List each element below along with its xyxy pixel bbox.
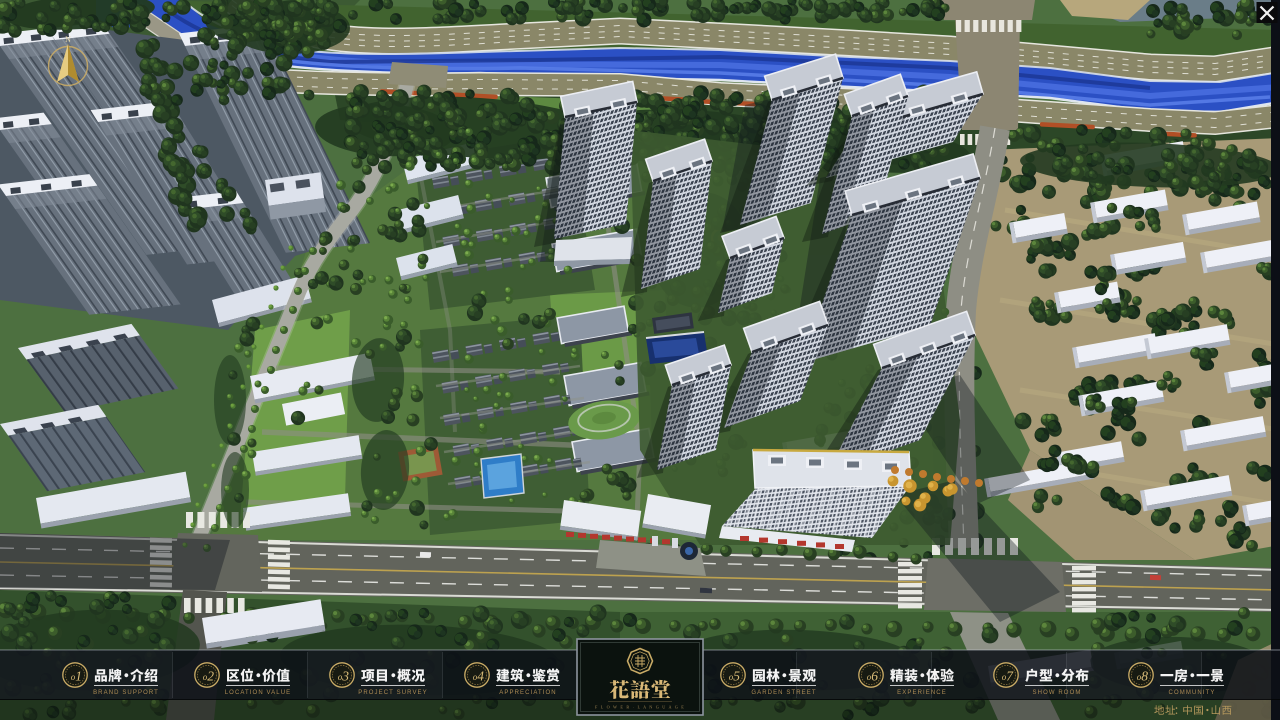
svg-text:BRAND SUPPORT: BRAND SUPPORT — [93, 690, 159, 696]
svg-text:SHOW ROOM: SHOW ROOM — [1033, 690, 1082, 696]
svg-text:5: 5 — [733, 669, 740, 684]
svg-text:3: 3 — [341, 669, 349, 684]
svg-text:2: 2 — [207, 669, 214, 684]
svg-text:N: N — [65, 35, 71, 44]
svg-text:LOCATION VALUE: LOCATION VALUE — [225, 690, 292, 696]
svg-text:6: 6 — [871, 669, 878, 684]
svg-text:COMMUNITY: COMMUNITY — [1169, 690, 1216, 696]
svg-text:8: 8 — [1141, 669, 1148, 684]
svg-text:APPRECIATION: APPRECIATION — [499, 690, 556, 696]
svg-text:EXPERIENCE: EXPERIENCE — [897, 690, 947, 696]
svg-text:1: 1 — [75, 669, 82, 684]
svg-text:PROJECT SURVEY: PROJECT SURVEY — [358, 690, 428, 696]
svg-text:4: 4 — [477, 669, 484, 684]
svg-text:F L O W E R · L A N G U A G E: F L O W E R · L A N G U A G E — [595, 705, 685, 710]
svg-text:GARDEN STREET: GARDEN STREET — [751, 690, 816, 696]
